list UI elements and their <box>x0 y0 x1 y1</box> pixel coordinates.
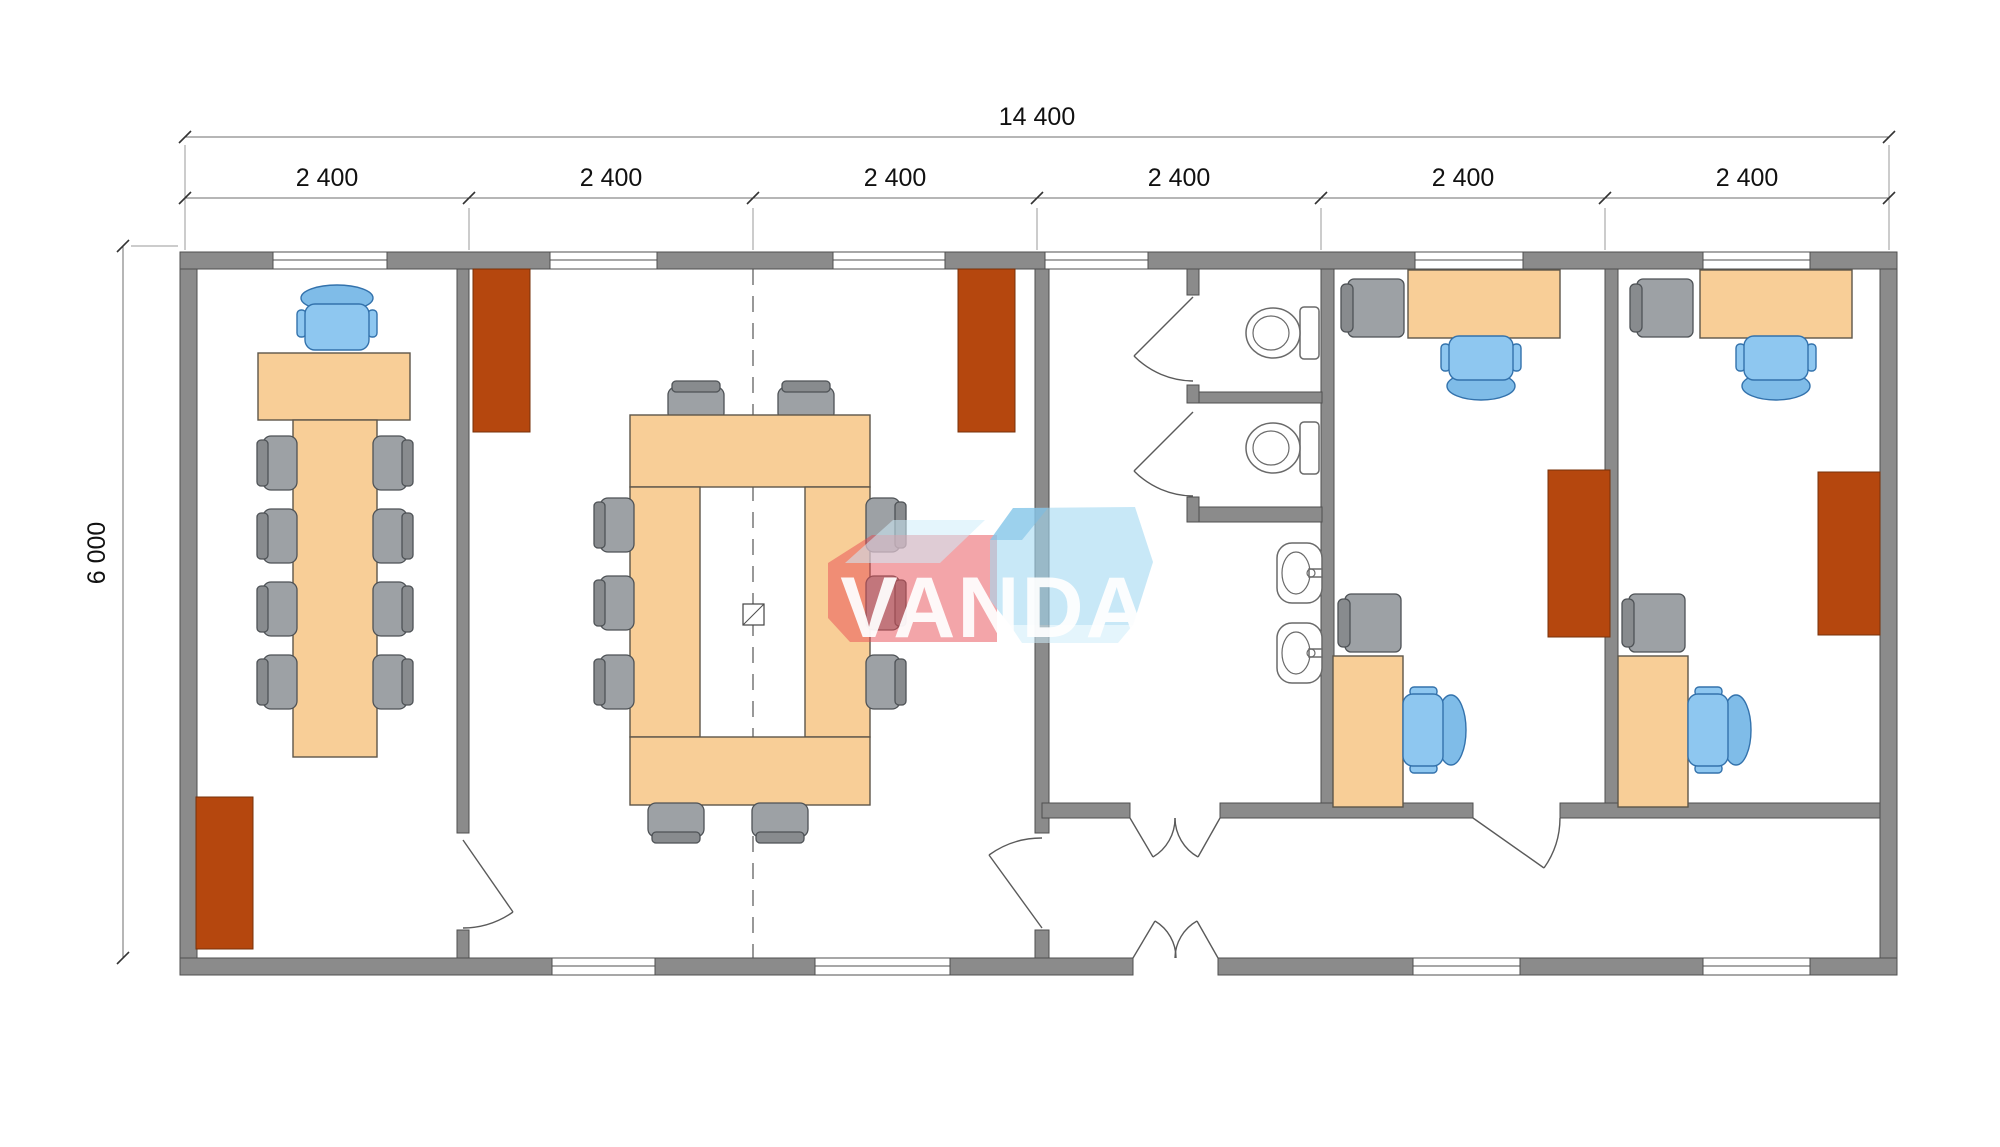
side-chair <box>257 436 297 490</box>
side-chair <box>594 655 634 709</box>
module-width-label: 2 400 <box>580 164 643 192</box>
side-chair <box>373 582 413 636</box>
corridor-wall-segment <box>1560 803 1880 818</box>
wc-stall-divider <box>1187 392 1322 403</box>
task-chair <box>1441 336 1521 400</box>
sanitary-fixtures <box>1246 307 1322 683</box>
desk <box>1408 270 1560 338</box>
meeting-table-head <box>258 353 410 420</box>
wash-basin <box>1277 543 1322 603</box>
conference-room-door-swing <box>989 838 1042 855</box>
module-width-label: 2 400 <box>1432 164 1495 192</box>
wc2-door-leaf <box>1134 412 1193 471</box>
wash-basin <box>1277 623 1322 683</box>
office1-door-swing <box>1544 818 1560 868</box>
visitor-chair <box>1341 279 1404 337</box>
desk <box>1333 656 1403 807</box>
partition-stub <box>1035 930 1049 958</box>
office-1-furniture <box>1333 270 1560 807</box>
wc-stall-wall-stub <box>1187 497 1199 522</box>
task-chair <box>1403 687 1466 773</box>
exterior-wall-top <box>180 252 1897 269</box>
overall-height-label: 6 000 <box>83 522 111 585</box>
meeting-room-door-leaf <box>463 840 513 912</box>
partition-meeting-conference <box>457 269 469 833</box>
lobby-door-left-leaf <box>1130 818 1153 857</box>
meeting-table <box>293 420 377 757</box>
side-chair <box>373 436 413 490</box>
visitor-chair <box>1630 279 1693 337</box>
side-chair <box>752 803 808 843</box>
wc1-door-leaf <box>1134 297 1193 356</box>
radiator <box>196 797 253 949</box>
office-2-furniture <box>1618 270 1852 807</box>
wc2-door-swing <box>1134 471 1193 496</box>
lobby-door-left-swing <box>1153 818 1175 857</box>
meeting-room-furniture <box>257 285 413 757</box>
side-chair <box>594 576 634 630</box>
module-width-label: 2 400 <box>864 164 927 192</box>
exterior-wall-bottom-left <box>180 958 1133 975</box>
entrance-door-left-swing <box>1155 921 1176 958</box>
visitor-chair <box>1622 594 1685 652</box>
lobby-door-right-leaf <box>1198 818 1220 857</box>
module-width-label: 2 400 <box>296 164 359 192</box>
entrance-door-left-leaf <box>1133 921 1155 958</box>
radiator <box>958 269 1015 432</box>
partition-wc-office1 <box>1321 269 1334 818</box>
side-chair <box>648 803 704 843</box>
office1-door-leaf <box>1473 818 1544 868</box>
radiator <box>1818 472 1880 635</box>
overall-width-label: 14 400 <box>999 103 1075 131</box>
side-chair <box>257 582 297 636</box>
partition-stub <box>457 930 469 958</box>
side-chair <box>373 655 413 709</box>
conference-table-left-band <box>630 487 700 737</box>
wc-stall-wall-stub <box>1187 269 1199 295</box>
task-chair <box>1736 336 1816 400</box>
corridor-wall-segment <box>1042 803 1130 818</box>
structural-column <box>743 604 764 625</box>
radiator <box>473 269 530 432</box>
side-chair <box>373 509 413 563</box>
watermark-text: VANDA <box>840 560 1149 656</box>
meeting-room-door-swing <box>463 912 513 928</box>
side-chair <box>866 655 906 709</box>
floor-plan-drawing: 14 400 2 400 2 400 2 400 2 400 2 400 2 4… <box>0 0 2000 1147</box>
entrance-door-right-leaf <box>1197 921 1218 958</box>
radiator <box>1548 470 1610 637</box>
side-chair <box>594 498 634 552</box>
visitor-chair <box>1338 594 1401 652</box>
wc-stall-wall-stub <box>1187 385 1199 403</box>
executive-chair <box>297 285 377 350</box>
side-chair <box>257 655 297 709</box>
exterior-wall-right <box>1880 269 1897 958</box>
entrance-door-right-swing <box>1175 921 1197 958</box>
side-chair <box>257 509 297 563</box>
toilet <box>1246 422 1319 474</box>
task-chair <box>1688 687 1751 773</box>
wc-stall-bottom-wall <box>1187 507 1322 522</box>
conference-room-door-leaf <box>989 855 1042 928</box>
conference-table-top-band <box>630 415 870 487</box>
module-width-label: 2 400 <box>1148 164 1211 192</box>
floor-plan-page: 14 400 2 400 2 400 2 400 2 400 2 400 2 4… <box>0 0 2000 1147</box>
desk <box>1700 270 1852 338</box>
toilet <box>1246 307 1319 359</box>
exterior-wall-left <box>180 269 197 958</box>
desk <box>1618 656 1688 807</box>
conference-table-bottom-band <box>630 737 870 805</box>
module-width-label: 2 400 <box>1716 164 1779 192</box>
lobby-door-right-swing <box>1175 818 1198 857</box>
wc1-door-swing <box>1134 356 1193 381</box>
